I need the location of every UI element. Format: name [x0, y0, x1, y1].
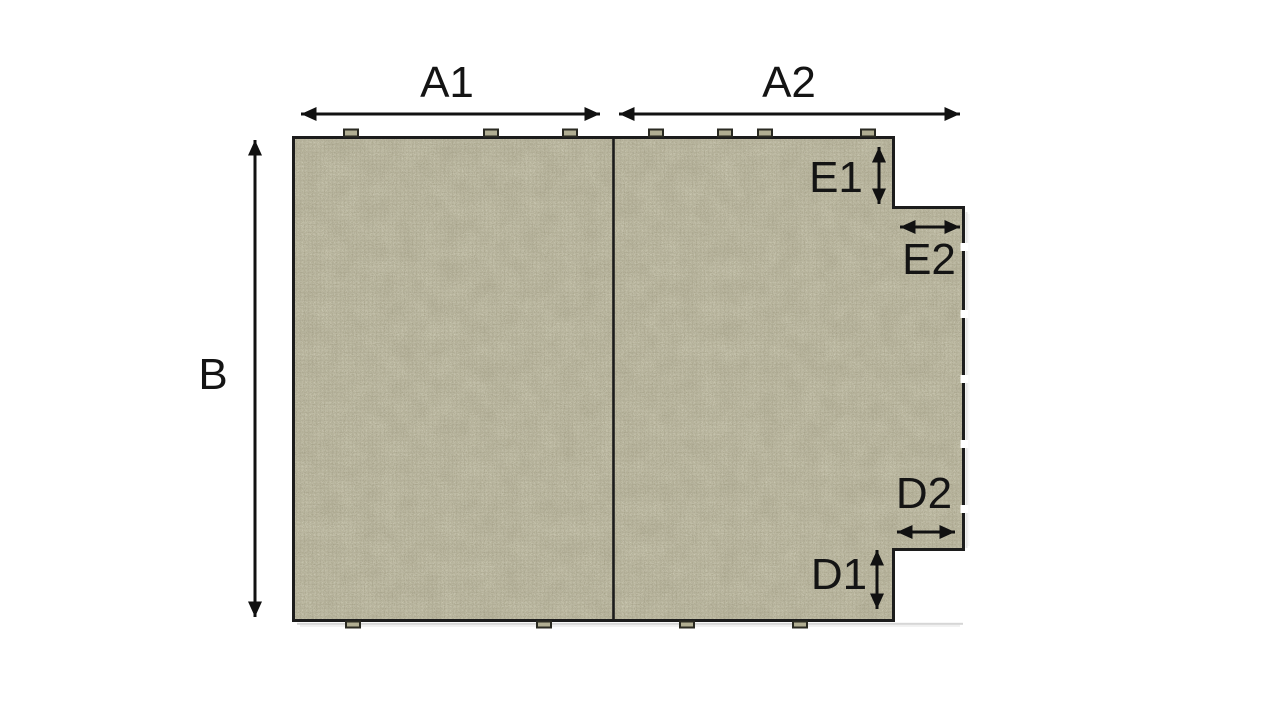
dim-label-e1: E1 — [809, 153, 863, 202]
dim-label-d2: D2 — [896, 469, 952, 518]
dim-label-d1: D1 — [811, 550, 867, 599]
mat-dimension-diagram: A1 A2 B E1 E2 D2 D1 — [0, 0, 1280, 720]
dim-label-a2: A2 — [762, 58, 816, 107]
dim-label-e2: E2 — [902, 235, 956, 284]
diagram-canvas: A1 A2 B E1 E2 D2 D1 — [0, 0, 1280, 720]
top-edge-tabs — [344, 130, 875, 137]
dim-label-a1: A1 — [420, 58, 474, 107]
mat-blotch-shading — [293, 137, 964, 621]
dim-label-b: B — [198, 350, 227, 399]
mat-panel — [293, 137, 964, 621]
